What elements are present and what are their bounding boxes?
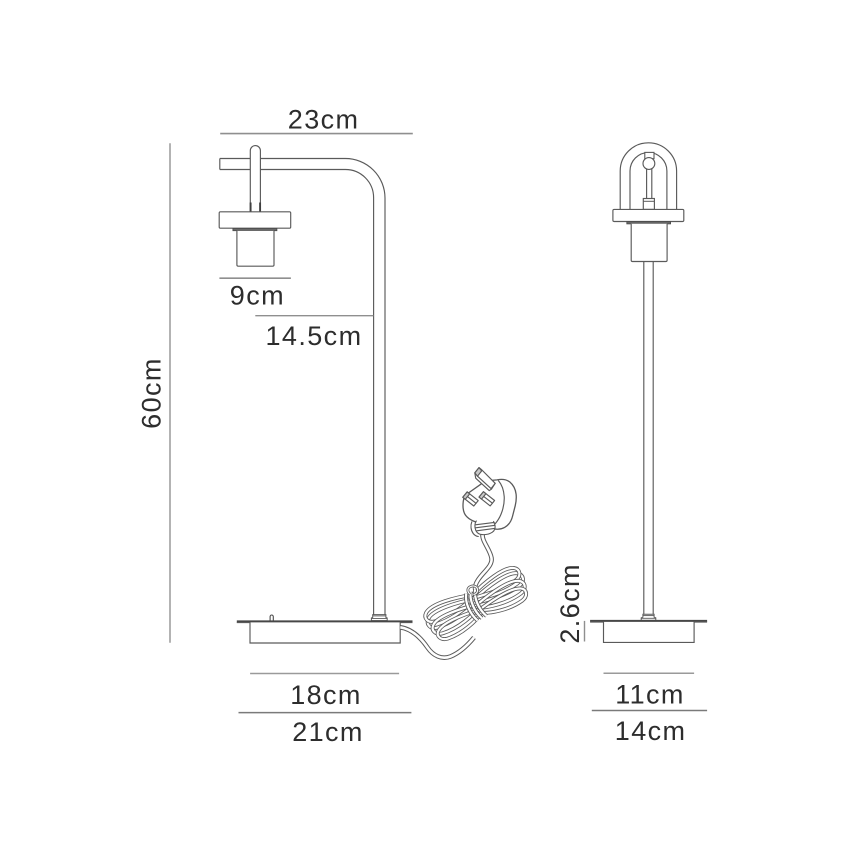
svg-text:21cm: 21cm: [292, 717, 364, 747]
svg-text:14cm: 14cm: [615, 716, 687, 746]
svg-text:14.5cm: 14.5cm: [266, 321, 363, 351]
svg-text:23cm: 23cm: [288, 105, 360, 135]
svg-text:18cm: 18cm: [290, 680, 362, 710]
svg-text:11cm: 11cm: [615, 680, 685, 710]
svg-text:60cm: 60cm: [136, 357, 166, 429]
svg-text:9cm: 9cm: [230, 281, 285, 311]
svg-text:2.6cm: 2.6cm: [555, 563, 585, 644]
